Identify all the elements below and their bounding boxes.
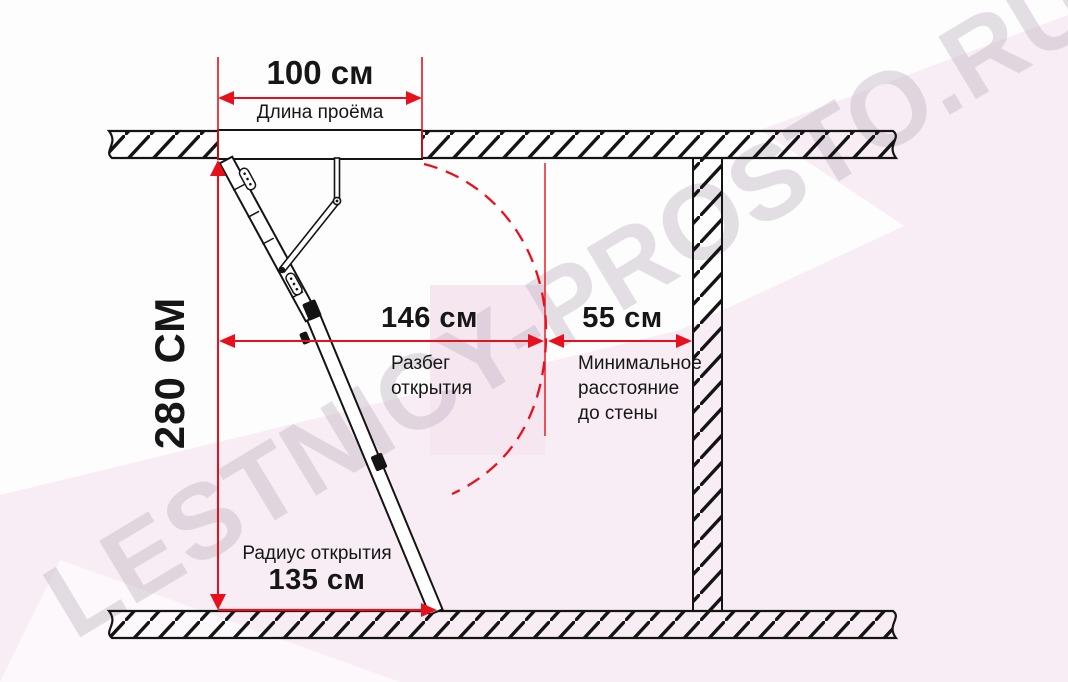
opening-length-value: 100 см (218, 54, 422, 92)
wall-clearance-label: Минимальное расстояние до стены (578, 351, 702, 426)
ladder-rod (335, 158, 340, 201)
attic-ladder-diagram: LESTNICY-PROSTO.RU (0, 0, 1068, 682)
opening-span-value: 146 см (352, 302, 507, 335)
opening-radius-label: Радиус открытия (217, 541, 417, 566)
dim-wall-clearance (548, 334, 692, 348)
ceiling-height-value: 280 СМ (146, 228, 194, 518)
opening-radius-value: 135 см (217, 564, 417, 597)
dim-opening-span (219, 334, 544, 348)
floor-slab (109, 611, 896, 638)
opening-span-label: Разбег открытия (391, 351, 472, 401)
strut-pivot (279, 267, 285, 273)
strut-joint-pin (336, 200, 339, 203)
hinge-block-small (299, 331, 311, 345)
ladder-strut (280, 199, 340, 272)
wall-clearance-value: 55 см (550, 302, 695, 335)
ceiling-opening (218, 130, 422, 159)
opening-length-label: Длина проёма (218, 100, 422, 125)
